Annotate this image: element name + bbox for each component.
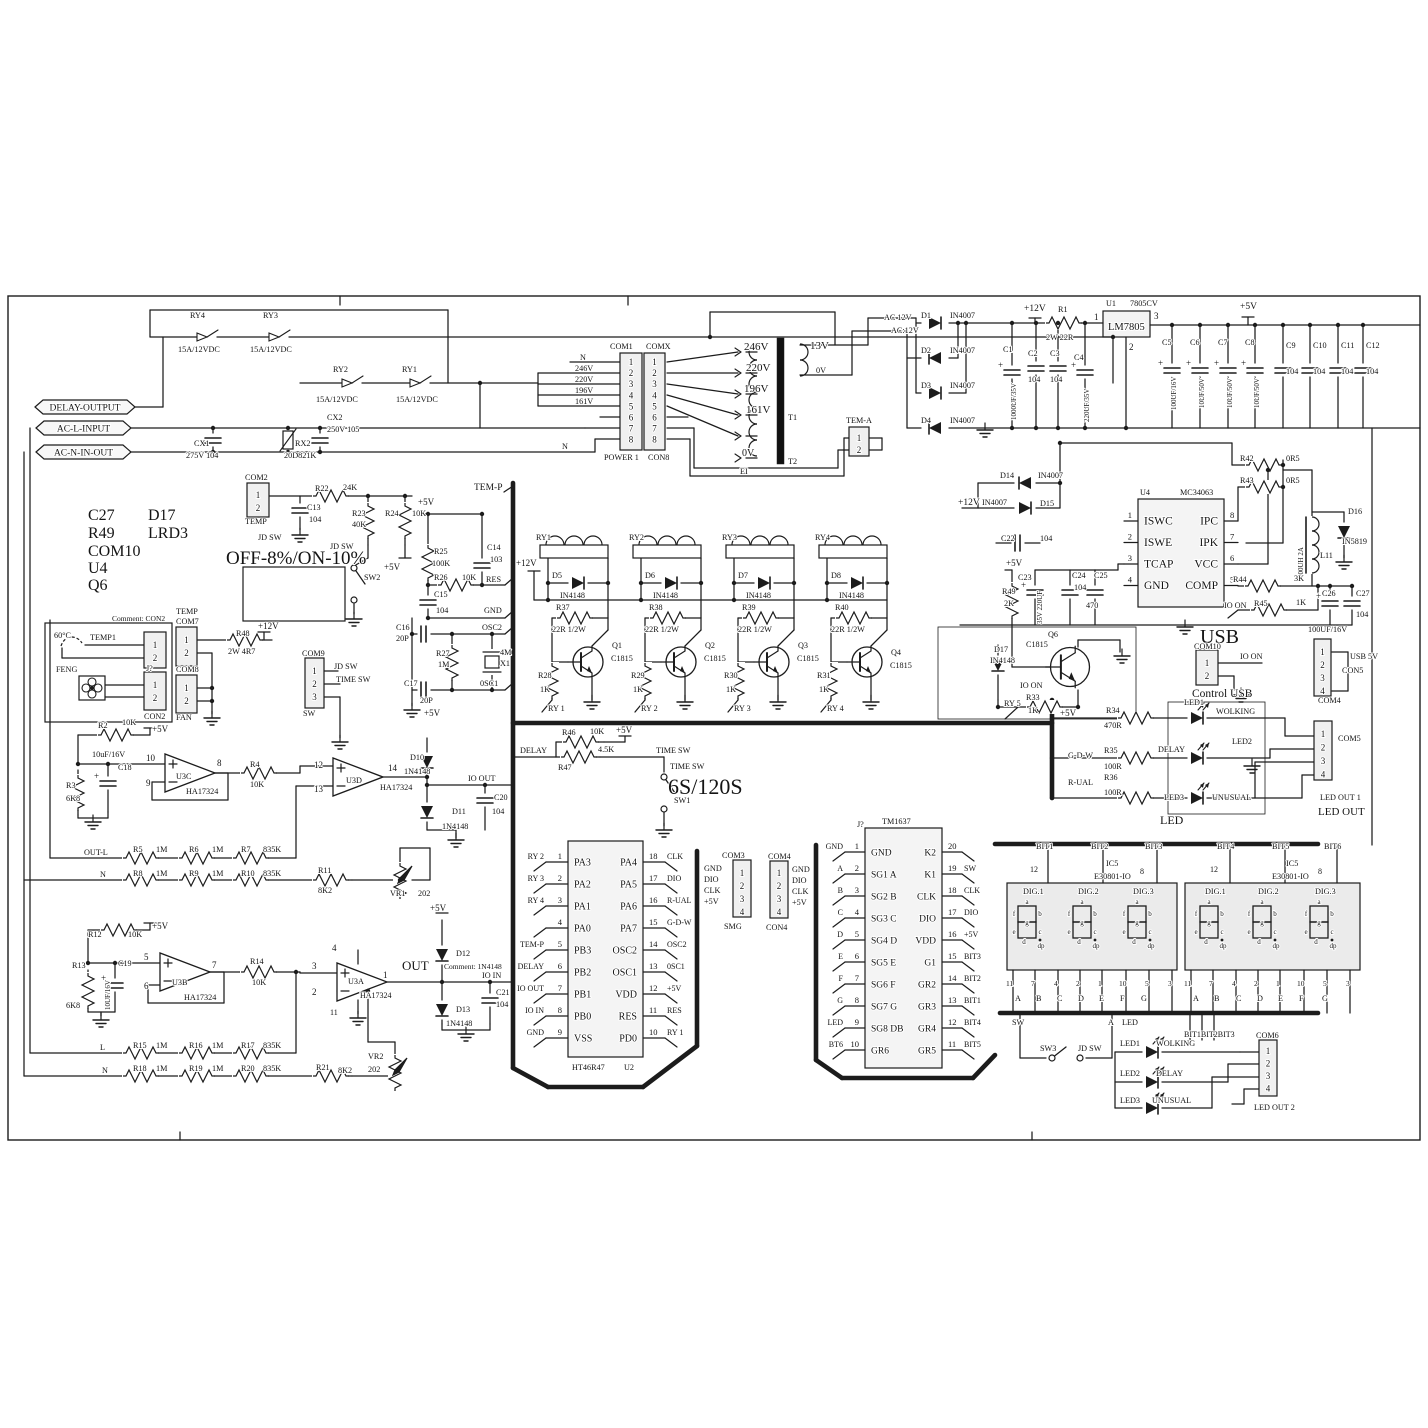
label: 10K	[128, 930, 142, 939]
label: LED2	[1120, 1069, 1140, 1078]
junction-dot	[410, 632, 414, 636]
npn-transistor	[1046, 646, 1090, 688]
label: DIO	[792, 876, 807, 885]
pin-number: 1	[855, 841, 859, 851]
pin-number: 6	[558, 961, 562, 971]
path	[800, 344, 808, 360]
resistor	[1117, 711, 1154, 725]
wire	[667, 406, 738, 436]
path	[749, 424, 757, 440]
label: 2	[312, 987, 317, 997]
net-flag: AC-N-IN-OUT	[36, 445, 131, 459]
label: IO IN	[482, 971, 501, 980]
label: R2	[98, 721, 108, 730]
path	[658, 536, 676, 545]
junction-dot	[546, 598, 550, 602]
label: 20D821K	[284, 451, 316, 460]
junction-dot	[956, 321, 960, 325]
label: 10	[146, 753, 156, 763]
pin-number: 2	[1128, 532, 1132, 542]
pin-number: 11	[649, 1005, 657, 1015]
wire	[735, 454, 741, 458]
pin-number: 4	[777, 907, 782, 917]
label: 15A/12VDC	[316, 395, 358, 404]
pin-name: PA7	[620, 924, 637, 935]
pin-name: GND	[871, 849, 892, 859]
path	[584, 536, 602, 545]
frame-rect	[1007, 883, 1177, 970]
label: IO ON	[1240, 652, 1263, 661]
pin-number: 2	[558, 873, 562, 883]
label: D15	[1040, 499, 1054, 508]
label: FENG	[56, 665, 77, 674]
junction-dot	[639, 598, 643, 602]
pin-number: 1	[312, 666, 317, 676]
pin-number: 19	[948, 863, 957, 873]
label: R26	[434, 573, 448, 582]
label: 1M	[156, 845, 168, 854]
pin-number: 1	[1320, 647, 1325, 657]
pin-signal: TEM-P	[520, 940, 545, 949]
label: BIT1BIT2BIT3	[1184, 1030, 1235, 1039]
wire	[833, 962, 845, 971]
wire	[534, 994, 546, 1003]
label: 104	[1028, 375, 1040, 384]
net-flag-label: DELAY-OUTPUT	[50, 404, 121, 414]
pin-number: 1	[1128, 510, 1132, 520]
junction-dot	[732, 581, 736, 585]
resistor	[1244, 579, 1281, 593]
connector: 1234	[770, 861, 788, 918]
label: 22R 1/2W	[831, 625, 865, 634]
label: IN4007	[950, 416, 975, 425]
pin-signal: D	[837, 930, 843, 939]
label: +	[1241, 358, 1246, 368]
junction-dot	[1336, 323, 1340, 327]
label: R5	[133, 845, 143, 854]
label: 161V	[746, 404, 771, 416]
label: +12V	[1024, 304, 1046, 314]
label: BIT4	[1217, 842, 1234, 851]
resistor	[398, 502, 412, 539]
label: g	[1260, 919, 1264, 927]
junction-dot	[398, 878, 402, 882]
mask	[1086, 586, 1104, 599]
label: dp	[1148, 942, 1156, 950]
junction-dot	[1226, 323, 1230, 327]
pin-signal: IO OUT	[517, 984, 544, 993]
label: b	[1093, 910, 1097, 918]
ground	[350, 1011, 366, 1025]
label: 6K8	[66, 794, 80, 803]
label: 4	[332, 943, 337, 953]
label: 10K	[122, 718, 136, 727]
label: TEM-A	[846, 416, 872, 425]
label: 0R5	[1286, 476, 1300, 485]
label: COM9	[302, 649, 325, 658]
label: R37	[556, 603, 570, 612]
label: LED OUT	[1318, 806, 1365, 818]
label: TIME SW	[656, 746, 691, 755]
pin-number: 1	[256, 490, 261, 500]
label: COM1	[610, 342, 633, 351]
label: 104	[496, 1000, 508, 1009]
pin-number: 3	[1128, 553, 1132, 563]
pin-name: PA3	[574, 858, 591, 869]
label: R13	[72, 961, 86, 970]
resistor	[562, 735, 599, 749]
label: d	[1314, 938, 1318, 946]
pin-name: OSC2	[613, 946, 637, 957]
junction-dot	[1083, 426, 1087, 430]
label: +	[998, 360, 1003, 370]
label: RY1	[402, 365, 417, 374]
label: Q2	[705, 641, 715, 650]
pin-number: 2	[184, 696, 189, 706]
pin-number: 3	[777, 894, 782, 904]
ground	[448, 833, 464, 847]
label: 7	[212, 960, 217, 970]
label: R48	[236, 629, 250, 638]
wire	[833, 984, 845, 993]
label: U3D	[346, 776, 362, 785]
mask	[1191, 364, 1209, 377]
chip-TM1637: GND1GNDSG1 A2ASG2 B3BSG3 C4CSG4 D5DSG5 E…	[826, 828, 981, 1068]
junction-dot	[210, 686, 214, 690]
label: G-D-W	[1068, 751, 1093, 760]
pin-signal: DELAY	[518, 962, 545, 971]
label: DIO	[704, 875, 719, 884]
label: C19	[118, 959, 132, 968]
junction-dot	[1308, 323, 1312, 327]
mask	[1049, 362, 1067, 375]
label: R19	[189, 1064, 203, 1073]
label: 100R	[1104, 762, 1122, 771]
label: +5V	[1240, 302, 1257, 312]
label: 1M	[212, 1041, 224, 1050]
label: OSC2	[482, 623, 502, 632]
label: +5V	[616, 725, 633, 735]
capacitor	[1343, 597, 1361, 610]
label: COM5	[1338, 734, 1361, 743]
label: JD SW	[258, 533, 282, 542]
label: 100R	[1104, 788, 1122, 797]
label: U3C	[176, 772, 192, 781]
label: +	[1186, 358, 1191, 368]
label: 10K	[250, 780, 264, 789]
label: C1815	[890, 661, 912, 670]
wire	[534, 950, 546, 959]
label: 1K	[1296, 598, 1306, 607]
pin-number: 1	[184, 683, 189, 693]
pin-signal: BIT5	[964, 1040, 981, 1049]
label: C12	[1366, 341, 1380, 350]
label: R16	[189, 1041, 203, 1050]
junction-dot	[1050, 716, 1054, 720]
label: DIG.3	[1133, 887, 1154, 896]
pin-signal: R-UAL	[667, 896, 692, 905]
wire	[1228, 610, 1238, 618]
label: RY4	[815, 533, 830, 542]
wire	[962, 1050, 974, 1059]
label: C22	[1001, 534, 1015, 543]
junction-dot	[490, 632, 494, 636]
label: b	[1220, 910, 1224, 918]
pin-signal: SW	[964, 864, 976, 873]
pin-name: GR2	[918, 981, 936, 991]
inductor	[1304, 516, 1320, 574]
connector: 12	[144, 632, 166, 668]
junction-dot	[1328, 584, 1332, 588]
diode	[848, 575, 867, 591]
schematic-canvas: ++++++++++afbgecddpafbgecddpafbgecddpafb…	[0, 0, 1428, 1428]
label: R8	[133, 869, 143, 878]
pin-name: SG5 E	[871, 959, 896, 969]
pin-number: 1	[184, 635, 189, 645]
capacitor	[311, 434, 329, 447]
wire	[962, 896, 974, 905]
pin-number: 13	[948, 995, 957, 1005]
pin-number: 4	[652, 390, 657, 400]
label: CX1	[194, 439, 209, 448]
led	[1188, 790, 1207, 806]
junction-dot	[76, 762, 80, 766]
frame-rect	[777, 338, 784, 464]
label: LED OUT 2	[1254, 1103, 1295, 1112]
pin-number: 4	[1266, 1084, 1271, 1094]
polygon	[269, 333, 279, 341]
label: 3K	[1294, 574, 1304, 583]
label: R24	[385, 509, 399, 518]
circle	[1039, 939, 1042, 942]
pin-signal: BT6	[829, 1040, 843, 1049]
label: 470R	[1104, 721, 1122, 730]
label: AC:12V	[891, 326, 919, 335]
pin-number: 8	[558, 1005, 562, 1015]
label: dp	[1038, 942, 1046, 950]
wire	[534, 884, 546, 893]
label: TEMP	[176, 607, 198, 616]
label: D13	[456, 1005, 470, 1014]
wire	[420, 376, 431, 383]
capacitor	[1049, 362, 1067, 375]
label: BIT2	[1091, 842, 1108, 851]
label: LM7805	[1108, 322, 1145, 333]
label: IN4148	[653, 591, 678, 600]
junction-dot	[708, 335, 712, 339]
connector: 123	[305, 658, 324, 708]
label: C	[1057, 994, 1063, 1003]
pin-name: SG6 F	[871, 981, 896, 991]
relay-contact	[269, 330, 290, 341]
pin-signal: DIO	[964, 908, 978, 917]
label: R27	[436, 649, 450, 658]
ground	[1177, 620, 1193, 634]
label: U1	[1106, 299, 1116, 308]
label: RY 2	[641, 704, 658, 713]
label: UNUSUAL	[1212, 793, 1251, 802]
label: CON5	[1342, 666, 1363, 675]
pin-name: PA1	[574, 902, 591, 913]
label: 470	[1086, 601, 1098, 610]
circle	[351, 597, 357, 603]
label: R35	[1104, 746, 1118, 755]
bus	[643, 1046, 697, 1087]
label: D12	[456, 949, 470, 958]
junction-dot	[210, 699, 214, 703]
label: 10K	[252, 978, 266, 987]
relay-contact	[197, 330, 218, 341]
pin-number: 2	[1266, 1059, 1271, 1069]
wire	[665, 1016, 677, 1025]
junction-dot	[699, 581, 703, 585]
wire	[833, 874, 845, 883]
mask	[311, 434, 329, 447]
label: CLK	[704, 886, 720, 895]
rect	[540, 545, 608, 558]
pin-number: 2	[855, 863, 859, 873]
pin-name: GR4	[918, 1025, 936, 1035]
pin-number: 2	[1205, 671, 1210, 681]
label: R14	[250, 957, 264, 966]
label: 9	[146, 778, 151, 788]
resistor	[649, 611, 686, 625]
label: D	[1078, 994, 1084, 1003]
label: R-UAL	[1068, 778, 1093, 787]
label: 1M	[212, 869, 224, 878]
label: CON4	[766, 923, 787, 932]
wire	[833, 1050, 845, 1059]
label: IN4148	[746, 591, 771, 600]
label: C18	[118, 763, 132, 772]
label: g	[1025, 919, 1029, 927]
pin-name: ISWE	[1144, 537, 1172, 549]
label: B	[1214, 994, 1220, 1003]
label: C2	[1028, 349, 1038, 358]
connector: 12	[1196, 650, 1218, 685]
label: 220V	[746, 362, 771, 374]
junction-dot	[403, 494, 407, 498]
path	[770, 536, 788, 545]
label: 196V	[744, 383, 769, 395]
label: JD SW	[1078, 1044, 1102, 1053]
label: R28	[538, 671, 552, 680]
junction-dot	[483, 783, 487, 787]
frame-rect	[243, 567, 345, 621]
circle	[1094, 939, 1097, 942]
schematic-page: ++++++++++afbgecddpafbgecddpafbgecddpafb…	[0, 0, 1428, 1428]
label: 60°C	[54, 631, 71, 640]
capacitor	[1246, 364, 1264, 377]
pin-number: 4	[855, 907, 860, 917]
label: 103	[490, 555, 502, 564]
label: R7	[241, 845, 251, 854]
label: +	[1316, 591, 1321, 601]
pin-number: 7	[652, 424, 657, 434]
pin-number: 16	[948, 929, 957, 939]
pin-signal: DIO	[667, 874, 681, 883]
label: HA17324	[184, 993, 216, 1002]
circle	[1221, 939, 1224, 942]
mask	[1076, 366, 1094, 379]
label: 1M	[212, 1064, 224, 1073]
connector: 1234	[1259, 1040, 1277, 1096]
label: 1N4148	[442, 822, 468, 831]
wire	[665, 994, 677, 1003]
label: R33	[1026, 693, 1040, 702]
label: R42	[1240, 454, 1254, 463]
label: R46	[562, 728, 576, 737]
label: 3	[1168, 979, 1172, 988]
pin-signal: G	[837, 996, 843, 1005]
label: RY 5	[1004, 699, 1021, 708]
pin-number: 3	[1320, 673, 1325, 683]
label: GND	[704, 864, 722, 873]
label: 835K	[263, 1064, 281, 1073]
label: 2	[1254, 979, 1258, 988]
mask	[1321, 597, 1339, 610]
pin-number: 7	[629, 424, 634, 434]
diode	[755, 575, 774, 591]
wire	[962, 852, 974, 861]
rect	[633, 545, 701, 558]
label: C14	[487, 543, 501, 552]
pin-number: 2	[777, 881, 782, 891]
label: C8	[1245, 338, 1255, 347]
ground	[584, 695, 600, 709]
label: 10K	[462, 573, 476, 582]
wire	[592, 630, 608, 646]
label: U4	[88, 560, 108, 577]
label: 835K	[263, 1041, 281, 1050]
circle	[661, 806, 667, 812]
wire	[962, 962, 974, 971]
label: +5V	[152, 724, 169, 734]
pin-name: OSC1	[613, 968, 637, 979]
label: 2W 22R	[1046, 333, 1074, 342]
label: 10UF/50V	[1226, 378, 1234, 408]
label: RY 4	[827, 704, 844, 713]
label: C23	[1018, 573, 1032, 582]
mask	[1219, 364, 1237, 377]
label: RX2	[295, 439, 310, 448]
npn-transistor	[847, 646, 882, 678]
capacitor	[1027, 362, 1045, 375]
label: HT46R47	[572, 1063, 605, 1072]
label: 1N4148	[404, 767, 430, 776]
pin-name: ISWC	[1144, 516, 1173, 528]
circle	[1149, 939, 1152, 942]
label: SW3	[1040, 1044, 1056, 1053]
label: 104	[1074, 583, 1086, 592]
pin-number: 3	[652, 379, 657, 389]
label: DELAY	[520, 746, 547, 755]
pin-number: 14	[649, 939, 658, 949]
ground	[677, 695, 693, 709]
ground	[458, 1027, 474, 1041]
pin-number: 11	[948, 1039, 956, 1049]
pin-signal: B	[838, 886, 843, 895]
wire	[871, 630, 887, 646]
pin-number: 17	[649, 873, 658, 883]
label: EI	[740, 467, 748, 476]
pin-signal: RY 2	[528, 852, 544, 861]
label: 1K	[633, 685, 643, 694]
junction-dot	[480, 583, 484, 587]
diode	[569, 575, 588, 591]
pin-number: 4	[740, 907, 745, 917]
label: D14	[1000, 471, 1014, 480]
